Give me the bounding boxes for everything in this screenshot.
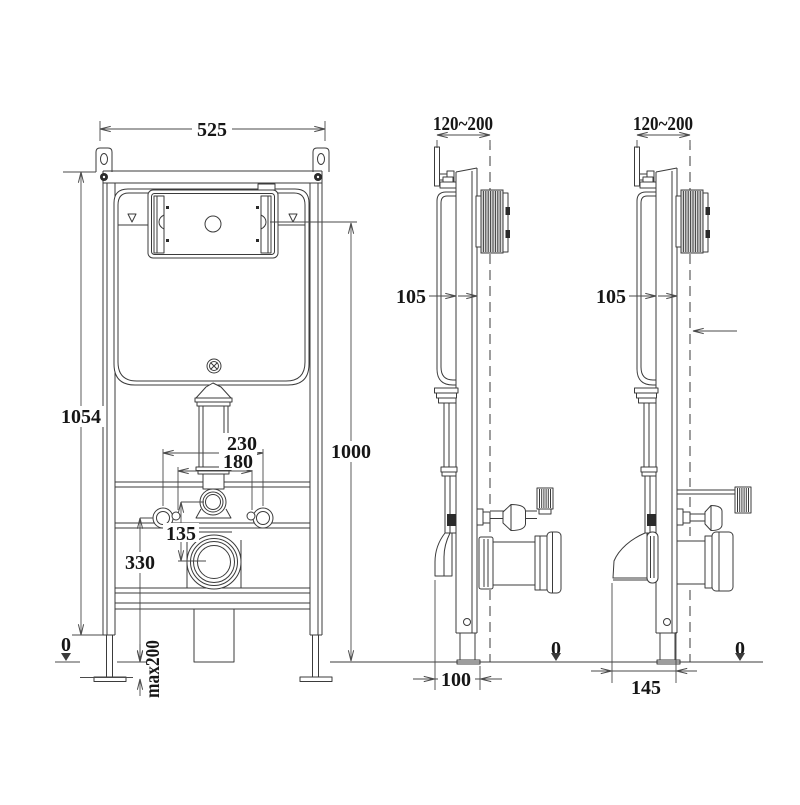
wall-bracket-plate-right <box>635 147 640 186</box>
tab-hole-left <box>101 154 108 165</box>
flush-plate-sleeve <box>476 190 510 253</box>
dim-label-foot-adjust: max200 <box>142 640 164 698</box>
dim-label-frame-height: 1054 <box>61 406 101 428</box>
flush-inlet <box>196 489 231 518</box>
flush-plate-opening <box>148 184 278 258</box>
sleeve-notch-right <box>706 230 711 238</box>
fixing-bolt-side-right <box>647 514 656 526</box>
flush-bend-side <box>435 403 457 576</box>
dim-front-width: 525 <box>100 118 325 141</box>
dim-label-width: 525 <box>197 119 227 141</box>
sleeve-notch-right <box>706 207 711 215</box>
flush-valve-screw <box>207 359 221 373</box>
mounting-tab-left <box>96 148 112 172</box>
dim-label-depth-range-right: 120~200 <box>633 113 693 135</box>
top-rail <box>103 171 322 183</box>
dim-label-flush-to-waste: 135 <box>166 523 196 545</box>
dim-label-fixing-height: 330 <box>125 552 155 574</box>
side-view-left: 120~200 105 100 0 <box>390 113 600 691</box>
top-clip <box>258 184 275 190</box>
datum-front: 0 <box>55 634 80 662</box>
dim-label-outlet-offset-left: 100 <box>441 669 471 691</box>
dim-label-frame-depth-left: 105 <box>396 286 426 308</box>
fixing-bolt-side <box>447 514 456 526</box>
sleeve-notch <box>506 230 511 238</box>
frame-column-profile <box>456 168 477 633</box>
dim-label-span-inner: 180 <box>223 451 253 473</box>
sleeve-notch <box>506 207 511 215</box>
fixing-bolt-right <box>247 508 273 528</box>
tab-hole-right <box>318 154 325 165</box>
screw-right-center <box>317 176 319 178</box>
wall-bracket-plate <box>435 147 440 186</box>
waste-connector-side <box>479 532 561 593</box>
datum-right-view: 0 <box>735 638 745 661</box>
dim-outlet-offset-right: 145 <box>591 583 697 699</box>
cistern-side-profile <box>435 177 459 403</box>
technical-drawing-page: 525 1054 1000 230 180 <box>0 0 800 800</box>
front-view: 525 1054 1000 230 180 <box>55 118 410 698</box>
dim-label-depth-range-left: 120~200 <box>433 113 493 135</box>
outlet-flap <box>647 532 658 583</box>
bolt-cone-cap-side <box>477 505 526 531</box>
leg-pin-hole-right <box>664 619 671 626</box>
dim-label-outlet-offset-right: 145 <box>631 677 661 699</box>
cistern-frame-drawing: 525 1054 1000 230 180 <box>0 0 800 800</box>
flush-plate-sleeve-right <box>676 190 710 253</box>
flush-bend-side-right <box>613 403 658 583</box>
cistern-side-profile-right <box>635 177 659 403</box>
waste-connector-side-right <box>677 532 733 591</box>
leg-pin-hole <box>464 619 471 626</box>
outlet-duct <box>194 609 234 662</box>
dim-frame-height: 1054 <box>58 172 104 635</box>
datum-label-front: 0 <box>61 634 71 656</box>
bolt-cone-cap-side-right <box>677 506 722 531</box>
datum-left-view: 0 <box>551 638 561 661</box>
side-view-right: 120~200 105 145 0 <box>591 113 763 699</box>
dim-outlet-offset-left: 100 <box>413 580 502 691</box>
dim-label-frame-depth-right: 105 <box>596 286 626 308</box>
screw-left-center <box>103 176 105 178</box>
mounting-tab-right <box>313 148 329 172</box>
dim-label-install-height: 1000 <box>331 441 371 463</box>
dim-depth-range-right: 120~200 <box>633 113 693 148</box>
dim-foot-adjust: max200 <box>80 640 164 698</box>
frame-column-profile-right <box>656 168 677 633</box>
datum-triangle-front <box>61 653 71 661</box>
dim-depth-range-left: 120~200 <box>433 113 493 148</box>
